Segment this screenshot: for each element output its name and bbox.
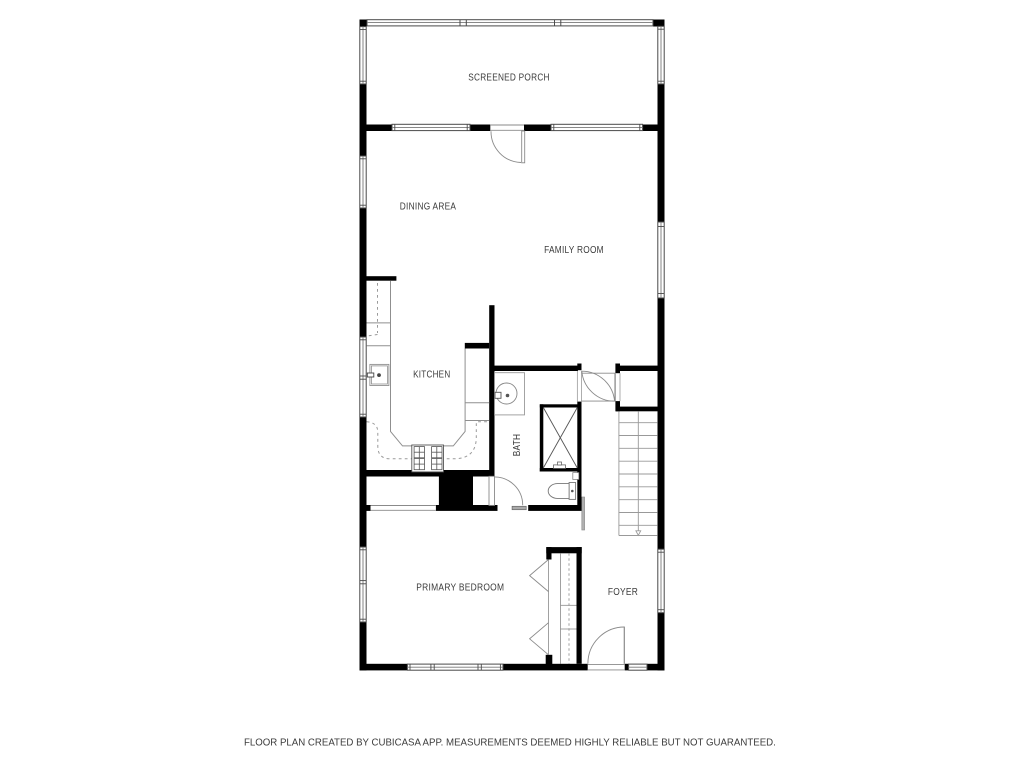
- svg-text:PRIMARY BEDROOM: PRIMARY BEDROOM: [416, 582, 504, 593]
- svg-text:DINING AREA: DINING AREA: [400, 202, 456, 213]
- svg-text:BATH: BATH: [512, 434, 523, 457]
- svg-text:FLOOR PLAN CREATED BY CUBICASA: FLOOR PLAN CREATED BY CUBICASA APP. MEAS…: [244, 737, 776, 748]
- svg-text:FAMILY ROOM: FAMILY ROOM: [544, 245, 604, 256]
- svg-text:KITCHEN: KITCHEN: [413, 370, 450, 381]
- svg-text:SCREENED PORCH: SCREENED PORCH: [468, 72, 550, 83]
- svg-text:FOYER: FOYER: [608, 587, 638, 598]
